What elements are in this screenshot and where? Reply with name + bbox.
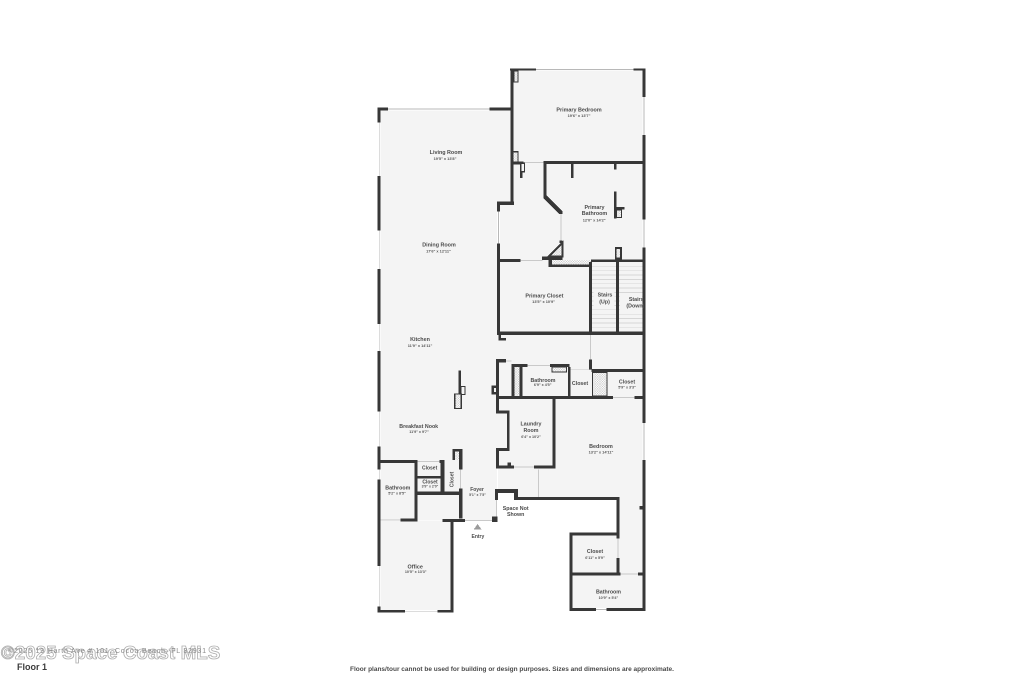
svg-text:Room: Room	[523, 428, 538, 434]
svg-text:5'1" x 7'5": 5'1" x 7'5"	[469, 493, 486, 497]
svg-text:13'2" x 14'11": 13'2" x 14'11"	[589, 449, 614, 454]
svg-text:10'5" x 13'3": 10'5" x 13'3"	[405, 570, 427, 574]
svg-text:(Down): (Down)	[626, 304, 644, 310]
svg-text:Laundry: Laundry	[521, 422, 542, 428]
svg-text:Bathroom: Bathroom	[385, 486, 410, 492]
svg-text:6'11" x 5'9": 6'11" x 5'9"	[585, 556, 605, 560]
svg-text:Entry: Entry	[472, 534, 485, 540]
svg-text:11'9" x 9'7": 11'9" x 9'7"	[409, 430, 429, 434]
svg-text:13'5" x 10'9": 13'5" x 10'9"	[532, 299, 555, 304]
svg-text:5'2" x 8'5": 5'2" x 8'5"	[388, 492, 406, 496]
svg-text:Closet: Closet	[587, 549, 603, 555]
svg-text:5'9" x 3'3": 5'9" x 3'3"	[618, 386, 636, 390]
svg-text:Closet: Closet	[450, 472, 456, 488]
svg-text:Shown: Shown	[507, 512, 524, 518]
svg-text:12'0" x 14'2": 12'0" x 14'2"	[583, 218, 606, 223]
svg-text:Stairs: Stairs	[598, 293, 613, 299]
svg-text:Bathroom: Bathroom	[596, 590, 621, 596]
svg-text:Closet: Closet	[572, 381, 588, 387]
svg-text:(Up): (Up)	[599, 299, 610, 305]
svg-text:11'9" x 14'11": 11'9" x 14'11"	[408, 343, 433, 348]
svg-text:3'9" x 2'0": 3'9" x 2'0"	[422, 485, 439, 489]
svg-text:Closet: Closet	[422, 466, 438, 472]
svg-text:6'9" x 4'5": 6'9" x 4'5"	[534, 383, 552, 387]
svg-text:Space Not: Space Not	[503, 506, 529, 512]
svg-text:Breakfast Nook: Breakfast Nook	[399, 424, 438, 430]
svg-text:Stairs: Stairs	[629, 297, 644, 303]
svg-text:10'9" x 5'4": 10'9" x 5'4"	[599, 596, 619, 600]
svg-text:Primary: Primary	[584, 205, 604, 211]
svg-text:Bathroom: Bathroom	[582, 211, 608, 217]
svg-text:6'4" x 10'2": 6'4" x 10'2"	[521, 435, 541, 439]
svg-text:17'6" x 12'11": 17'6" x 12'11"	[426, 248, 451, 253]
svg-text:Foyer: Foyer	[470, 487, 484, 493]
svg-text:19'6" x 13'7": 19'6" x 13'7"	[568, 113, 591, 118]
svg-text:Closet: Closet	[619, 380, 635, 386]
svg-text:19'5" x 13'8": 19'5" x 13'8"	[434, 156, 457, 161]
